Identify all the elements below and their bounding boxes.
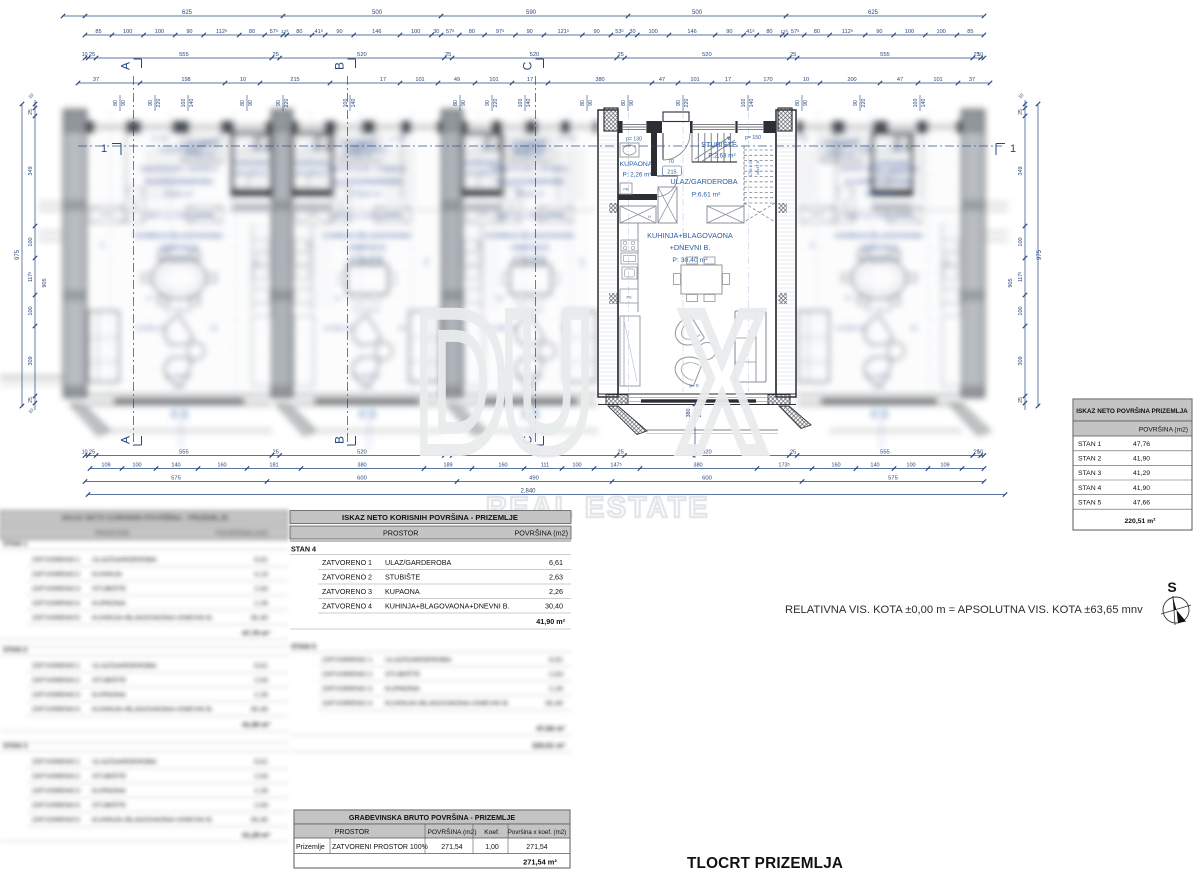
svg-text:KLIZNA ST.: KLIZNA ST.: [323, 326, 354, 332]
svg-text:975: 975: [15, 249, 21, 260]
svg-text:41,29: 41,29: [1133, 470, 1150, 477]
svg-text:KUHINJA+BLAGOVAONA+DNEVNI B.: KUHINJA+BLAGOVAONA+DNEVNI B.: [385, 602, 510, 611]
svg-text:215: 215: [290, 77, 299, 83]
svg-text:30,40: 30,40: [545, 699, 563, 708]
svg-text:975: 975: [1037, 249, 1043, 260]
svg-text:6,61: 6,61: [254, 663, 268, 670]
svg-text:25: 25: [790, 52, 796, 58]
svg-text:520: 520: [357, 449, 367, 455]
svg-text:80: 80: [766, 29, 772, 35]
svg-text:100: 100: [936, 29, 945, 35]
svg-text:KUHINJA+BLAGOVAONA+DNEVNI B.: KUHINJA+BLAGOVAONA+DNEVNI B.: [92, 615, 213, 622]
svg-text:555: 555: [179, 52, 189, 58]
svg-text:25: 25: [272, 52, 278, 58]
svg-text:P:6,61 m²: P:6,61 m²: [864, 191, 894, 198]
svg-text:ZATVORENO: ZATVORENO: [32, 774, 76, 781]
svg-text:2,26: 2,26: [254, 601, 268, 608]
svg-text:2,26: 2,26: [254, 788, 268, 795]
svg-text:ZATVORENO: ZATVORENO: [32, 586, 76, 593]
svg-text:25: 25: [445, 52, 451, 58]
svg-text:80: 80: [211, 326, 217, 332]
svg-text:90: 90: [588, 100, 594, 106]
svg-text:4: 4: [76, 601, 80, 608]
svg-text:KUPAONA: KUPAONA: [385, 587, 420, 596]
svg-text:PROSTOR: PROSTOR: [95, 531, 130, 538]
svg-text:80: 80: [795, 100, 801, 106]
svg-text:520: 520: [702, 52, 712, 58]
svg-text:25: 25: [89, 449, 95, 455]
svg-text:+DNEVNI B.: +DNEVNI B.: [158, 243, 199, 252]
svg-text:ZATVORENO: ZATVORENO: [32, 663, 76, 670]
svg-text:1: 1: [76, 557, 80, 564]
svg-text:41,90: 41,90: [1133, 456, 1150, 463]
svg-text:30: 30: [433, 29, 439, 35]
svg-text:ZATVORENO: ZATVORENO: [322, 587, 367, 596]
svg-text:101: 101: [489, 77, 498, 83]
svg-text:STUBIŠTE: STUBIŠTE: [385, 670, 420, 679]
svg-text:380: 380: [357, 462, 366, 468]
svg-text:P: 30,40 m²: P: 30,40 m²: [672, 257, 708, 264]
svg-text:575: 575: [171, 475, 181, 481]
svg-text:RELATIVNA VIS. KOTA ±0,00 m =: RELATIVNA VIS. KOTA ±0,00 m = APSOLUTNA …: [785, 604, 1143, 616]
svg-text:1: 1: [368, 558, 372, 567]
svg-text:STUBIŠTE: STUBIŠTE: [92, 801, 127, 810]
svg-text:ZATVORENO: ZATVORENO: [32, 803, 76, 810]
svg-text:Površina x koef. (m2): Površina x koef. (m2): [508, 829, 566, 836]
svg-text:100: 100: [411, 29, 420, 35]
svg-text:+DNEVNI B.: +DNEVNI B.: [858, 243, 899, 252]
svg-text:ISKAZ NETO KORISNIH POVRŠINA -: ISKAZ NETO KORISNIH POVRŠINA - PRIZEMLJE: [62, 513, 229, 522]
svg-text:41,90 m²: 41,90 m²: [536, 617, 565, 626]
svg-text:STUBIŠTE: STUBIŠTE: [92, 676, 127, 685]
svg-text:p= 130: p= 130: [474, 144, 490, 150]
svg-text:47: 47: [659, 77, 665, 83]
svg-text:101: 101: [933, 77, 942, 83]
svg-text:30,40: 30,40: [250, 817, 268, 824]
svg-text:260: 260: [371, 410, 377, 419]
svg-text:140: 140: [749, 99, 755, 108]
svg-text:100: 100: [28, 306, 34, 315]
svg-text:1: 1: [368, 655, 372, 664]
svg-text:ULAZ/GARDEROBA: ULAZ/GARDEROBA: [385, 558, 452, 567]
svg-text:140: 140: [921, 99, 927, 108]
svg-text:P:6,61 m²: P:6,61 m²: [164, 191, 194, 198]
svg-text:85: 85: [95, 29, 101, 35]
svg-text:10: 10: [240, 77, 246, 83]
svg-text:SMJEŠTAJNA JEDINICA: SMJEŠTAJNA JEDINICA: [140, 164, 219, 173]
svg-text:PROSTOR: PROSTOR: [383, 529, 418, 538]
svg-text:STAN 5: STAN 5: [291, 642, 316, 651]
svg-text:PROSTOR: PROSTOR: [335, 829, 370, 836]
svg-text:200: 200: [847, 77, 856, 83]
svg-text:ULAZ/GARDEROBA: ULAZ/GARDEROBA: [92, 557, 157, 564]
svg-text:POVRŠINA (m2): POVRŠINA (m2): [216, 529, 268, 538]
svg-text:625: 625: [868, 10, 879, 16]
svg-text:25: 25: [28, 397, 34, 403]
svg-text:500: 500: [372, 10, 383, 16]
svg-text:ZATVORENO: ZATVORENO: [322, 558, 367, 567]
svg-text:2: 2: [368, 573, 372, 582]
svg-text:905: 905: [1008, 278, 1014, 287]
svg-text:P:2,63 m²: P:2,63 m²: [708, 153, 735, 160]
svg-text:100: 100: [648, 29, 657, 35]
svg-text:A: A: [119, 62, 133, 70]
svg-text:KUPAONA: KUPAONA: [92, 692, 126, 699]
svg-text:C: C: [521, 61, 535, 70]
svg-text:90: 90: [461, 100, 467, 106]
svg-text:555: 555: [880, 449, 890, 455]
svg-text:90: 90: [148, 100, 154, 106]
svg-text:160: 160: [831, 462, 840, 468]
svg-text:109: 109: [101, 462, 110, 468]
svg-text:ISKAZ NETO KORISNIH POVRŠINA -: ISKAZ NETO KORISNIH POVRŠINA - PRIZEMLJE: [342, 513, 518, 522]
svg-text:KUPAONA: KUPAONA: [385, 684, 420, 693]
svg-text:100: 100: [123, 29, 132, 35]
svg-text:90: 90: [853, 100, 859, 106]
svg-text:4: 4: [368, 602, 372, 611]
svg-text:S: S: [1167, 579, 1176, 595]
svg-text:2: 2: [76, 572, 80, 579]
svg-text:80: 80: [469, 29, 475, 35]
svg-text:ULAZ/GARDEROBA: ULAZ/GARDEROBA: [385, 655, 452, 664]
svg-text:ZATVORENI PROSTOR 100%: ZATVORENI PROSTOR 100%: [332, 844, 428, 851]
svg-text:101: 101: [415, 77, 424, 83]
svg-text:146: 146: [687, 29, 696, 35]
svg-text:P:2,63 m²: P:2,63 m²: [827, 151, 855, 158]
svg-text:41,29 m²: 41,29 m²: [242, 833, 271, 840]
svg-text:3: 3: [368, 587, 372, 596]
svg-text:STUBIŠTE: STUBIŠTE: [701, 140, 737, 149]
svg-text:47,66 m²: 47,66 m²: [536, 724, 565, 733]
svg-text:90: 90: [594, 29, 600, 35]
svg-text:KUPAONA: KUPAONA: [92, 601, 126, 608]
svg-text:p= 130: p= 130: [884, 144, 900, 150]
svg-text:10: 10: [977, 449, 983, 455]
svg-text:90: 90: [121, 100, 127, 106]
svg-text:KUPAONA: KUPAONA: [620, 161, 653, 168]
svg-text:1: 1: [76, 663, 80, 670]
svg-text:3: 3: [368, 684, 372, 693]
svg-text:KUPAONA: KUPAONA: [465, 160, 499, 167]
svg-text:4: 4: [76, 707, 80, 714]
svg-text:41,90: 41,90: [1133, 485, 1150, 492]
svg-text:555: 555: [179, 449, 189, 455]
svg-text:STAN 3: STAN 3: [1078, 470, 1102, 477]
svg-text:2,26: 2,26: [549, 684, 563, 693]
svg-text:p= 150: p= 150: [745, 135, 761, 141]
svg-text:ULAZ/GARDEROBA: ULAZ/GARDEROBA: [332, 177, 402, 186]
svg-text:2,63: 2,63: [254, 803, 268, 810]
svg-text:2,63: 2,63: [254, 678, 268, 685]
svg-text:6,61: 6,61: [254, 759, 268, 766]
svg-text:220,51 m²: 220,51 m²: [1125, 518, 1157, 525]
svg-text:KUHINJA+BLAGOVAONA: KUHINJA+BLAGOVAONA: [135, 231, 225, 240]
svg-text:6,61: 6,61: [254, 557, 268, 564]
svg-text:17: 17: [527, 77, 533, 83]
svg-text:271,54 m²: 271,54 m²: [523, 858, 557, 867]
svg-text:90: 90: [276, 100, 282, 106]
svg-text:ZATVORENO: ZATVORENO: [322, 655, 367, 664]
svg-text:U: U: [501, 273, 593, 493]
svg-text:p= 0: p= 0: [874, 384, 884, 389]
svg-text:STAN 2: STAN 2: [3, 647, 27, 654]
svg-text:ULAZ/GARDEROBA: ULAZ/GARDEROBA: [495, 177, 565, 186]
svg-text:STUBIŠTE: STUBIŠTE: [824, 139, 859, 148]
svg-text:STAN 5: STAN 5: [1078, 499, 1102, 506]
svg-text:STAN 4: STAN 4: [291, 545, 316, 554]
svg-text:271,54: 271,54: [441, 844, 463, 851]
svg-text:A: A: [119, 436, 133, 444]
svg-text:147: 147: [845, 296, 854, 302]
svg-text:5: 5: [76, 615, 80, 622]
svg-text:100: 100: [28, 237, 34, 246]
svg-text:ZATVORENO: ZATVORENO: [32, 788, 76, 795]
svg-text:STUBIŠTE: STUBIŠTE: [92, 772, 127, 781]
svg-text:KUHINJA+BLAGOVAONA+DNEVNI B.: KUHINJA+BLAGOVAONA+DNEVNI B.: [92, 817, 213, 824]
svg-text:p= 0: p= 0: [174, 384, 184, 389]
svg-text:1: 1: [76, 759, 80, 766]
svg-text:25: 25: [1018, 109, 1024, 115]
svg-text:P:2,63 m²: P:2,63 m²: [187, 151, 215, 158]
svg-text:25: 25: [790, 449, 796, 455]
svg-text:6,61: 6,61: [549, 558, 563, 567]
svg-text:ZATVORENO: ZATVORENO: [32, 572, 76, 579]
svg-text:100: 100: [741, 99, 747, 108]
svg-text:198: 198: [181, 77, 190, 83]
svg-text:170: 170: [763, 77, 772, 83]
svg-text:ULAZ/GARDEROBA: ULAZ/GARDEROBA: [92, 663, 157, 670]
svg-text:80: 80: [399, 326, 405, 332]
svg-text:KUHINJA: KUHINJA: [92, 572, 122, 579]
svg-text:P: 2,26 m²: P: 2,26 m²: [297, 170, 327, 177]
svg-text:220: 220: [284, 99, 290, 108]
svg-text:KUPAONA: KUPAONA: [92, 788, 126, 795]
svg-text:109: 109: [940, 462, 949, 468]
svg-text:10: 10: [977, 52, 983, 58]
svg-text:ZATVORENO: ZATVORENO: [32, 707, 76, 714]
svg-text:47,76 m²: 47,76 m²: [242, 631, 271, 638]
svg-text:520: 520: [530, 52, 540, 58]
svg-text:KUPAONA: KUPAONA: [235, 160, 269, 167]
svg-text:P: 2,26 m²: P: 2,26 m²: [622, 172, 651, 179]
svg-text:B: B: [333, 62, 347, 70]
svg-text:349: 349: [1018, 166, 1024, 175]
svg-text:37: 37: [969, 77, 975, 83]
svg-text:ZATVORENO: ZATVORENO: [32, 557, 76, 564]
svg-text:KUHINJA+BLAGOVAONA: KUHINJA+BLAGOVAONA: [647, 231, 733, 240]
svg-text:ISKAZ NETO POVRŠINA PRIZEMLJA: ISKAZ NETO POVRŠINA PRIZEMLJA: [1076, 406, 1188, 415]
svg-text:ZATVORENO: ZATVORENO: [32, 817, 76, 824]
svg-text:80: 80: [911, 326, 917, 332]
svg-text:25: 25: [1018, 397, 1024, 403]
svg-text:4: 4: [76, 803, 80, 810]
svg-text:309: 309: [1018, 356, 1024, 365]
svg-text:905: 905: [42, 278, 48, 287]
svg-text:STAN 1: STAN 1: [1078, 441, 1102, 448]
svg-text:220: 220: [493, 99, 499, 108]
svg-text:P: 2,26 m²: P: 2,26 m²: [467, 170, 497, 177]
svg-text:30: 30: [629, 29, 635, 35]
svg-text:STUBIŠTE: STUBIŠTE: [342, 139, 377, 148]
svg-text:220: 220: [684, 99, 690, 108]
svg-text:STUBIŠTE: STUBIŠTE: [92, 584, 127, 593]
svg-text:555: 555: [880, 52, 890, 58]
svg-text:25: 25: [89, 52, 95, 58]
svg-text:100: 100: [343, 99, 349, 108]
svg-text:215: 215: [667, 169, 676, 175]
svg-text:10: 10: [82, 52, 88, 58]
svg-text:30,40: 30,40: [545, 602, 563, 611]
svg-text:KUHINJA+BLAGOVAONA: KUHINJA+BLAGOVAONA: [323, 231, 413, 240]
svg-text:625: 625: [182, 10, 193, 16]
svg-text:TLOCRT PRIZEMLJA: TLOCRT PRIZEMLJA: [687, 855, 843, 872]
svg-text:KLIZNA ST.: KLIZNA ST.: [135, 326, 166, 332]
svg-text:100: 100: [905, 29, 914, 35]
svg-text:SMJEŠTAJNA JEDINICA: SMJEŠTAJNA JEDINICA: [328, 164, 407, 173]
svg-text:380: 380: [595, 77, 604, 83]
svg-text:216: 216: [944, 258, 950, 267]
svg-text:1,00: 1,00: [485, 844, 499, 851]
svg-text:25: 25: [272, 449, 278, 455]
svg-text:220: 220: [861, 99, 867, 108]
svg-text:100: 100: [132, 462, 141, 468]
svg-text:GRAĐEVINSKA BRUTO POVRŠINA - P: GRAĐEVINSKA BRUTO POVRŠINA - PRIZEMLJE: [349, 813, 515, 822]
svg-text:4: 4: [368, 699, 372, 708]
svg-text:25: 25: [617, 449, 623, 455]
svg-text:380: 380: [172, 410, 178, 419]
svg-text:ULAZ/GARDEROBA: ULAZ/GARDEROBA: [92, 759, 157, 766]
svg-text:146: 146: [372, 29, 381, 35]
svg-text:181: 181: [269, 462, 278, 468]
svg-text:2: 2: [76, 774, 80, 781]
svg-text:Prizemlje: Prizemlje: [296, 844, 325, 851]
svg-text:216: 216: [254, 258, 260, 267]
svg-text:140: 140: [171, 462, 180, 468]
svg-text:10: 10: [82, 449, 88, 455]
svg-text:p= 130: p= 130: [244, 144, 260, 150]
svg-text:80: 80: [580, 100, 586, 106]
svg-text:ZATVORENO: ZATVORENO: [322, 670, 367, 679]
svg-text:100: 100: [1018, 237, 1024, 246]
svg-text:p= 150: p= 150: [152, 136, 168, 142]
svg-text:100: 100: [913, 99, 919, 108]
svg-text:ULAZ/GARDEROBA: ULAZ/GARDEROBA: [670, 177, 737, 186]
svg-text:X: X: [680, 273, 765, 493]
svg-text:KUHINJA+BLAGOVAONA: KUHINJA+BLAGOVAONA: [835, 231, 925, 240]
svg-text:3: 3: [76, 586, 80, 593]
svg-text:ULAZ/GARDEROBA: ULAZ/GARDEROBA: [144, 177, 214, 186]
svg-text:ZATVORENO: ZATVORENO: [322, 699, 367, 708]
svg-text:70: 70: [668, 159, 674, 165]
svg-text:90: 90: [527, 29, 533, 35]
svg-text:90: 90: [629, 100, 635, 106]
svg-text:90: 90: [485, 100, 491, 106]
svg-text:520: 520: [357, 52, 367, 58]
svg-text:100: 100: [181, 99, 187, 108]
svg-text:2,26: 2,26: [549, 587, 563, 596]
svg-text:600: 600: [357, 475, 367, 481]
svg-text:p= 150: p= 150: [390, 136, 406, 142]
svg-text:17,5 x 29: 17,5 x 29: [748, 159, 753, 176]
svg-text:90: 90: [248, 100, 254, 106]
svg-text:140: 140: [189, 99, 195, 108]
svg-text:30,40: 30,40: [250, 615, 268, 622]
svg-text:2,63: 2,63: [254, 586, 268, 593]
svg-text:25: 25: [28, 109, 34, 115]
svg-text:90: 90: [803, 100, 809, 106]
svg-text:1: 1: [101, 143, 107, 155]
svg-text:ZATVORENO: ZATVORENO: [32, 615, 76, 622]
svg-text:KUHINJA+BLAGOVAONA: KUHINJA+BLAGOVAONA: [486, 231, 576, 240]
svg-text:47,76: 47,76: [1133, 441, 1150, 448]
svg-text:380: 380: [872, 410, 878, 419]
svg-text:500: 500: [692, 10, 703, 16]
svg-text:ZATVORENO: ZATVORENO: [322, 573, 367, 582]
svg-text:ZATVORENO: ZATVORENO: [322, 602, 367, 611]
svg-text:216: 216: [424, 258, 430, 267]
svg-text:260: 260: [183, 410, 189, 419]
svg-text:PS: PS: [626, 296, 632, 300]
svg-text:3: 3: [76, 788, 80, 795]
svg-text:80: 80: [814, 29, 820, 35]
svg-text:KLIZNA ST.: KLIZNA ST.: [835, 326, 866, 332]
svg-text:POVRŠINA (m2): POVRŠINA (m2): [1139, 425, 1188, 434]
svg-text:P:6,61 m²: P:6,61 m²: [692, 192, 721, 199]
svg-text:80: 80: [621, 100, 627, 106]
svg-text:271,54: 271,54: [526, 844, 548, 851]
svg-text:100: 100: [518, 99, 524, 108]
svg-text:p= 130: p= 130: [626, 137, 642, 143]
svg-text:H: H: [648, 215, 651, 219]
svg-text:80: 80: [296, 29, 302, 35]
svg-text:ZATVORENO: ZATVORENO: [322, 684, 367, 693]
svg-text:ULAZ/GARDEROBA: ULAZ/GARDEROBA: [844, 177, 914, 186]
svg-text:p= 150: p= 150: [560, 136, 576, 142]
svg-text:101: 101: [690, 77, 699, 83]
svg-text:D: D: [415, 273, 507, 493]
svg-text:140: 140: [351, 99, 357, 108]
svg-text:100: 100: [155, 29, 164, 35]
svg-text:100: 100: [1018, 306, 1024, 315]
svg-text:30,40: 30,40: [250, 707, 268, 714]
svg-text:575: 575: [888, 475, 898, 481]
svg-text:41,90 m²: 41,90 m²: [242, 722, 271, 729]
svg-text:2,26: 2,26: [254, 692, 268, 699]
svg-text:ZATVORENO: ZATVORENO: [32, 692, 76, 699]
svg-text:140: 140: [526, 99, 532, 108]
svg-text:P: 2,26 m²: P: 2,26 m²: [237, 170, 267, 177]
svg-text:2,63: 2,63: [549, 670, 563, 679]
svg-text:P: 2,26 m²: P: 2,26 m²: [877, 170, 907, 177]
svg-text:100: 100: [906, 462, 915, 468]
svg-text:POVRŠINA (m2): POVRŠINA (m2): [427, 827, 476, 836]
svg-text:2: 2: [76, 678, 80, 685]
svg-text:220: 220: [156, 99, 162, 108]
svg-text:KUPAONA: KUPAONA: [295, 160, 329, 167]
svg-text:90: 90: [186, 29, 192, 35]
svg-text:220,51 m²: 220,51 m²: [532, 741, 565, 750]
svg-text:+DNEVNI B.: +DNEVNI B.: [509, 243, 550, 252]
svg-text:90: 90: [876, 29, 882, 35]
svg-text:6,61: 6,61: [549, 655, 563, 664]
svg-text:85: 85: [967, 29, 973, 35]
svg-text:+DNEVNI B.: +DNEVNI B.: [346, 243, 387, 252]
svg-text:p= 0: p= 0: [362, 384, 372, 389]
svg-text:17: 17: [725, 77, 731, 83]
svg-text:590: 590: [526, 10, 537, 16]
svg-text:5: 5: [76, 817, 80, 824]
svg-text:309: 309: [28, 356, 34, 365]
